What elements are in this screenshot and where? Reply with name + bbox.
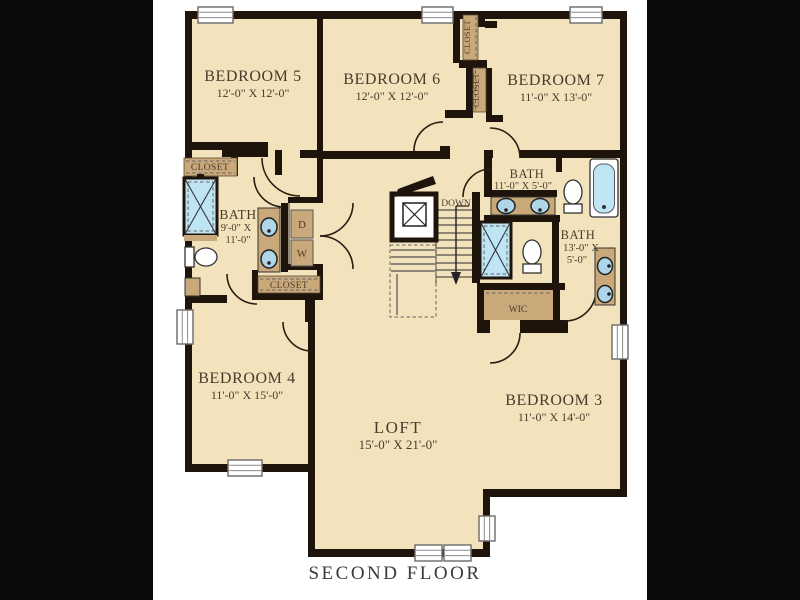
shower-left (184, 174, 217, 241)
window (479, 516, 495, 541)
bedroom3-name: BEDROOM 3 (505, 392, 602, 409)
toilet-top (564, 180, 582, 213)
bedroom4-name: BEDROOM 4 (198, 370, 295, 387)
vanity-right (595, 248, 615, 305)
bath-right-name: BATH (561, 228, 596, 242)
shower-right (480, 218, 511, 278)
window (415, 545, 442, 561)
bathtub (590, 159, 618, 217)
bedroom7-size: 11'-0" X 13'-0" (520, 90, 592, 104)
window (198, 7, 233, 23)
bedroom5-name: BEDROOM 5 (204, 68, 301, 85)
bath-left-name: BATH (219, 207, 256, 222)
closet-label-hall: CLOSET (270, 281, 308, 291)
bath-top-name: BATH (510, 167, 545, 181)
closet-label-top1: CLOSET (462, 20, 472, 54)
bedroom5-size: 12'-0" X 12'-0" (217, 86, 290, 100)
washer-label: W (297, 248, 308, 260)
window (612, 325, 628, 359)
bath-right-size1: 13'-0" X (563, 243, 599, 254)
window (570, 7, 602, 23)
loft-size: 15'-0" X 21'-0" (359, 437, 438, 452)
toilet-right (523, 240, 541, 273)
loft-name: LOFT (374, 418, 423, 437)
bedroom6-size: 12'-0" X 12'-0" (356, 89, 429, 103)
window (444, 545, 471, 561)
closet-label-top2: CLOSET (471, 73, 481, 107)
vanity-top (491, 197, 555, 215)
vanity-left (258, 208, 280, 272)
bath-right-size2: 5'-0" (567, 255, 587, 266)
bedroom7-name: BEDROOM 7 (507, 72, 604, 89)
linen-cabinet (185, 278, 200, 296)
dryer-label: D (298, 219, 306, 231)
down-label: DOWN (441, 199, 471, 209)
closet-label-bedroom5: CLOSET (191, 163, 229, 173)
bath-top-size: 11'-0" X 5'-0" (494, 181, 552, 192)
bedroom3-size: 11'-0" X 14'-0" (518, 410, 590, 424)
bath-left-size2: 11'-0" (225, 235, 250, 246)
floor-plan: BEDROOM 5 12'-0" X 12'-0" BEDROOM 6 12'-… (0, 0, 800, 600)
window (228, 460, 262, 476)
plan-caption: SECOND FLOOR (308, 563, 481, 584)
bath-left-size1: 9'-0" X (221, 223, 252, 234)
bedroom6-name: BEDROOM 6 (343, 71, 440, 88)
toilet-left (185, 247, 217, 267)
wic-label: WIC (509, 305, 527, 315)
window (177, 310, 193, 344)
window (422, 7, 453, 23)
bedroom4-size: 11'-0" X 15'-0" (211, 388, 283, 402)
